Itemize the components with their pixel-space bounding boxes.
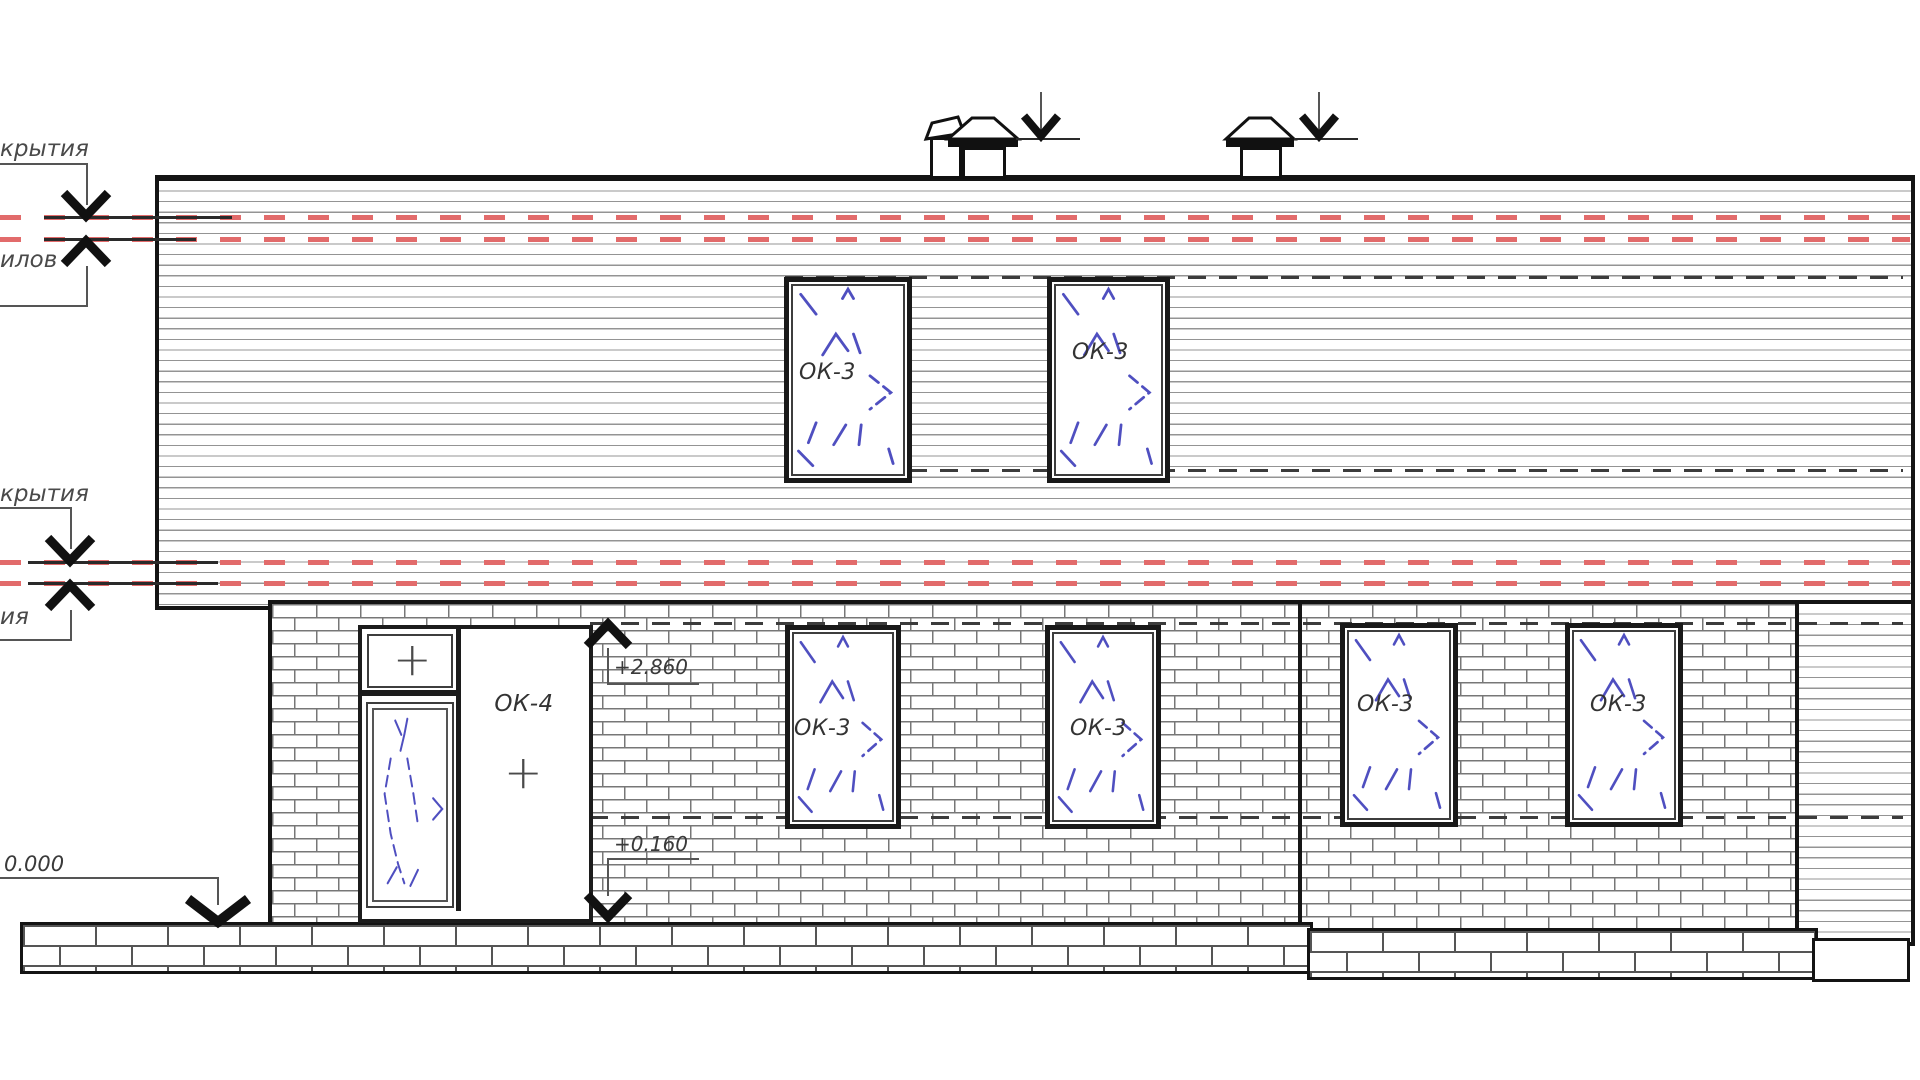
annotation-bracket (70, 610, 72, 640)
down-arrow-icon (46, 536, 94, 563)
elevation-value-door-sill: +0.160 (614, 832, 688, 856)
down-arrow-icon (62, 191, 110, 218)
window-ok3-first-floor-3: ОК-3 (1340, 623, 1458, 827)
roof-annotation-mid: крытия (0, 481, 89, 507)
annotation-bracket (0, 163, 88, 165)
door-label: ОК-4 (462, 691, 586, 717)
annotation-bracket (86, 266, 88, 306)
window-label: ОК-3 (1070, 716, 1127, 741)
down-arrow-icon (585, 893, 631, 919)
window-ok3-upper-right: ОК-3 (1047, 277, 1170, 483)
duplex-division-line (1298, 604, 1302, 925)
window-label: ОК-3 (1072, 340, 1129, 365)
foundation-strip-right (1307, 928, 1818, 980)
vent-cap-plate-2 (1226, 139, 1294, 147)
window-label: ОК-3 (1590, 692, 1647, 717)
vent-level-tick-2 (1294, 138, 1358, 140)
window-ok3-first-floor-2: ОК-3 (1045, 625, 1161, 829)
red-level-line-roof-top-2 (0, 237, 1910, 242)
annotation-bracket (0, 305, 88, 307)
red-level-line-floor-1 (0, 560, 1910, 565)
door-mullion (456, 629, 461, 911)
down-arrow-icon (184, 896, 252, 924)
window-opening-symbol-icon (1349, 632, 1449, 818)
elevation-leader-stem (607, 648, 609, 684)
window-sill-level-line-upper (785, 469, 1903, 472)
annotation-bracket (0, 639, 72, 641)
elevation-value-door-head: +2.860 (614, 655, 688, 679)
door-unit-ok4: + ОК-4 + (358, 625, 593, 923)
elevation-leader-line (0, 877, 219, 879)
door-panel-cross-mark: + (504, 757, 543, 787)
foundation-strip-left (20, 922, 1313, 974)
door-opening-symbol-icon (374, 710, 446, 900)
vent-hip-cap-1 (948, 116, 1018, 140)
window-ok3-first-floor-1: ОК-3 (785, 625, 901, 829)
vent-hip-cap-2 (1226, 116, 1294, 140)
door-transom-bar (362, 690, 456, 696)
foundation-stub-right (1812, 938, 1910, 982)
door-leaf (366, 702, 454, 908)
down-arrow-icon (1022, 114, 1060, 138)
window-label: ОК-3 (799, 360, 856, 385)
annotation-bracket (0, 507, 72, 509)
window-opening-symbol-icon (1056, 286, 1161, 474)
elevation-leader-stem (607, 858, 609, 896)
vent-stack-1 (962, 147, 1006, 179)
red-level-line-floor-2 (0, 581, 1910, 586)
door-transom-window: + (367, 634, 453, 688)
roof-annotation-top: крытия (0, 136, 89, 162)
window-label: ОК-3 (1357, 692, 1414, 717)
elevation-leader-line (607, 858, 699, 860)
up-arrow-icon (62, 239, 110, 266)
transom-cross-mark: + (393, 644, 432, 674)
vent-stack-2 (1240, 147, 1282, 179)
up-arrow-icon (46, 583, 94, 610)
elevation-value-ground: 0.000 (4, 852, 64, 876)
elevation-leader-line (607, 683, 699, 685)
window-ok3-first-floor-4: ОК-3 (1565, 623, 1683, 827)
window-label: ОК-3 (794, 716, 851, 741)
red-level-line-roof-top-1 (0, 215, 1910, 220)
right-wing-siding-wall (1795, 600, 1915, 946)
up-arrow-icon (585, 622, 631, 648)
down-arrow-icon (1300, 114, 1338, 138)
window-ok3-upper-left: ОК-3 (784, 277, 912, 483)
vent-level-tick-1 (1016, 138, 1080, 140)
window-opening-symbol-icon (1574, 632, 1674, 818)
window-head-level-line-upper (785, 276, 1903, 279)
roof-annotation-mid-hidden: ия (0, 604, 29, 630)
vent-cap-plate-1 (948, 139, 1018, 147)
roof-annotation-top-hidden: илов (0, 247, 57, 273)
